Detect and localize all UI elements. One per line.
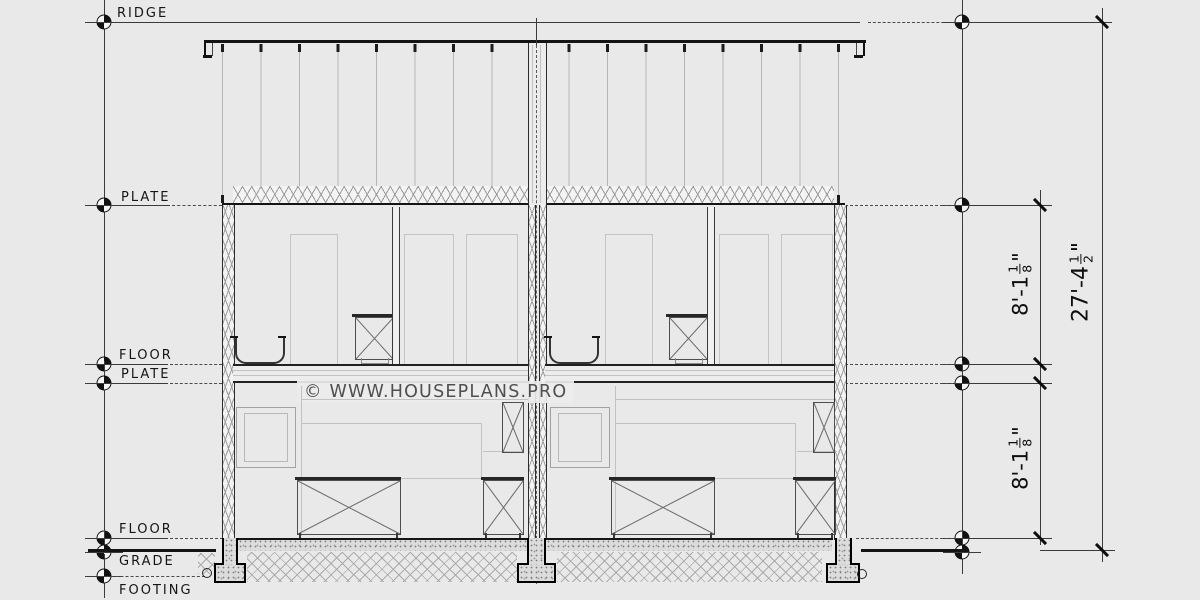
datum-marker-icon xyxy=(940,0,984,44)
level-line xyxy=(845,383,953,384)
slab-line xyxy=(546,538,833,540)
door-outline xyxy=(404,234,454,365)
foundation-footing xyxy=(527,538,546,565)
bathtub xyxy=(549,337,599,364)
level-line xyxy=(856,538,953,539)
wall-cabinet xyxy=(813,402,835,453)
grade-line xyxy=(88,549,216,552)
level-line xyxy=(845,205,953,206)
party-wall xyxy=(540,45,541,203)
countertop-line xyxy=(398,478,483,479)
earth-hatch xyxy=(557,552,822,582)
floor-assembly xyxy=(545,364,834,383)
party-wall-centerline xyxy=(536,18,537,45)
grade-line xyxy=(861,549,968,552)
window-outline xyxy=(550,407,610,468)
slab-line xyxy=(233,538,528,540)
partition-wall xyxy=(707,207,715,364)
foundation-footing xyxy=(214,563,246,583)
grade-label: GRADE xyxy=(119,554,175,569)
cabinet-detail-line xyxy=(301,423,481,424)
anchor-bolt-icon xyxy=(857,569,867,579)
foundation-footing xyxy=(517,563,556,583)
window-outline xyxy=(236,407,296,468)
party-wall-centerline xyxy=(536,45,537,584)
footing-label: FOOTING xyxy=(119,583,193,598)
datum-marker-icon xyxy=(940,530,984,574)
main-floor-label: FLOOR xyxy=(119,522,173,537)
base-cabinet xyxy=(483,480,524,535)
main-plate-label: PLATE xyxy=(121,367,170,382)
foundation-footing xyxy=(835,538,852,565)
door-outline xyxy=(466,234,518,365)
upper-floor-label: FLOOR xyxy=(119,348,173,363)
ceiling-insulation xyxy=(545,186,834,203)
ceiling-insulation xyxy=(233,186,528,203)
dimension-main-story: 8'-118" xyxy=(1006,426,1033,490)
ridge-label: RIDGE xyxy=(117,6,168,21)
door-outline xyxy=(781,234,833,365)
cabinet-detail-line xyxy=(615,423,795,424)
partition-wall xyxy=(392,207,400,364)
bathtub xyxy=(235,337,285,364)
party-wall xyxy=(528,43,547,205)
door-outline xyxy=(605,234,653,365)
soffit-line xyxy=(301,399,528,400)
section-drawing: RIDGE PLATE FLOOR PLATE FLOOR GRADE FOOT… xyxy=(0,0,1200,600)
level-line xyxy=(845,364,953,365)
level-line xyxy=(112,383,168,384)
ridge-extension-line xyxy=(971,22,1112,23)
roof-fascia xyxy=(854,55,863,58)
wall-cabinet xyxy=(502,402,524,453)
floor-assembly xyxy=(233,370,528,371)
countertop-line xyxy=(712,478,797,479)
slab xyxy=(238,539,528,551)
vanity-cabinet xyxy=(355,317,394,360)
bathtub xyxy=(544,336,552,338)
base-cabinet xyxy=(297,480,401,535)
ridge-line xyxy=(112,22,860,23)
soffit-line xyxy=(615,399,834,400)
base-cabinet xyxy=(795,480,836,535)
slab xyxy=(546,539,832,551)
foundation-footing xyxy=(222,538,238,565)
party-wall xyxy=(528,205,536,540)
dimension-overall-height: 27'-412" xyxy=(1067,242,1094,322)
door-outline xyxy=(719,234,769,365)
level-line xyxy=(172,205,222,206)
datum-column-line xyxy=(962,4,963,570)
bathtub xyxy=(230,336,238,338)
door-outline xyxy=(290,234,338,365)
footing-level-line xyxy=(100,576,205,577)
cabinet-detail-line xyxy=(481,423,482,478)
level-line xyxy=(112,364,168,365)
party-wall xyxy=(532,45,533,203)
dimension-line xyxy=(1102,8,1103,562)
bathtub xyxy=(592,336,600,338)
base-cabinet xyxy=(611,480,715,535)
vanity-cabinet xyxy=(669,317,708,360)
level-line xyxy=(170,364,222,365)
bathtub xyxy=(278,336,286,338)
earth-hatch xyxy=(247,552,517,582)
floor-assembly xyxy=(545,370,834,371)
datum-column-line xyxy=(104,4,105,596)
roof-fascia xyxy=(203,55,212,58)
foundation-footing xyxy=(826,563,860,583)
anchor-bolt-icon xyxy=(202,568,212,578)
level-line xyxy=(112,538,168,539)
floor-assembly xyxy=(233,375,528,376)
cabinet-detail-line xyxy=(795,423,796,478)
level-line xyxy=(112,205,170,206)
level-line xyxy=(170,383,222,384)
floor-assembly xyxy=(545,375,834,376)
dimension-upper-story: 8'-118" xyxy=(1006,252,1033,316)
upper-plate-label: PLATE xyxy=(121,190,170,205)
